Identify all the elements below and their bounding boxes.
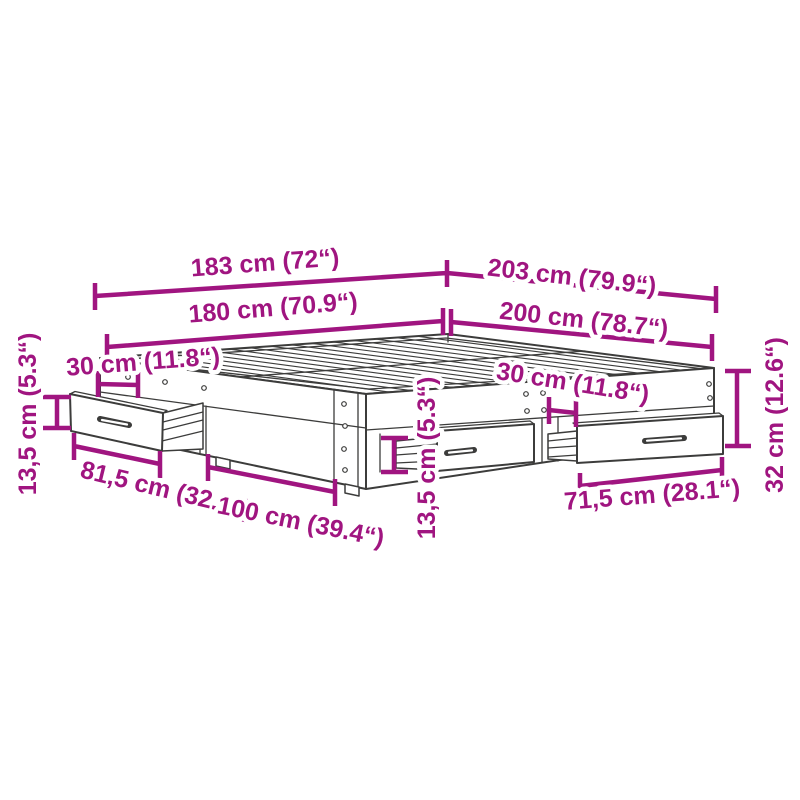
dim-label-left-drawer-height: 13,5 cm (5.3“) <box>14 333 42 496</box>
dim-label-outer-length: 203 cm (79.9“) <box>486 253 658 300</box>
front-drawer-front <box>437 424 534 471</box>
product-dimension-diagram: 183 cm (72“) 203 cm (79.9“) 180 cm (70.9… <box>0 0 800 800</box>
dim-line-left-drawer-height <box>43 397 71 428</box>
dim-label-right-drawer-width: 71,5 cm (28.1“) <box>563 474 741 516</box>
dim-line-frame-height <box>725 371 751 446</box>
dim-label-frame-height: 32 cm (12.6“) <box>761 337 789 493</box>
bed-frame-dimension-diagram: 183 cm (72“) 203 cm (79.9“) 180 cm (70.9… <box>0 0 800 800</box>
dim-label-front-drawer-height: 13,5 cm (5.3“) <box>413 377 441 540</box>
dim-label-front-drawer-width: 100 cm (39.4“) <box>215 491 387 552</box>
dim-label-inner-width: 180 cm (70.9“) <box>187 287 358 328</box>
dim-label-outer-width: 183 cm (72“) <box>190 243 340 282</box>
